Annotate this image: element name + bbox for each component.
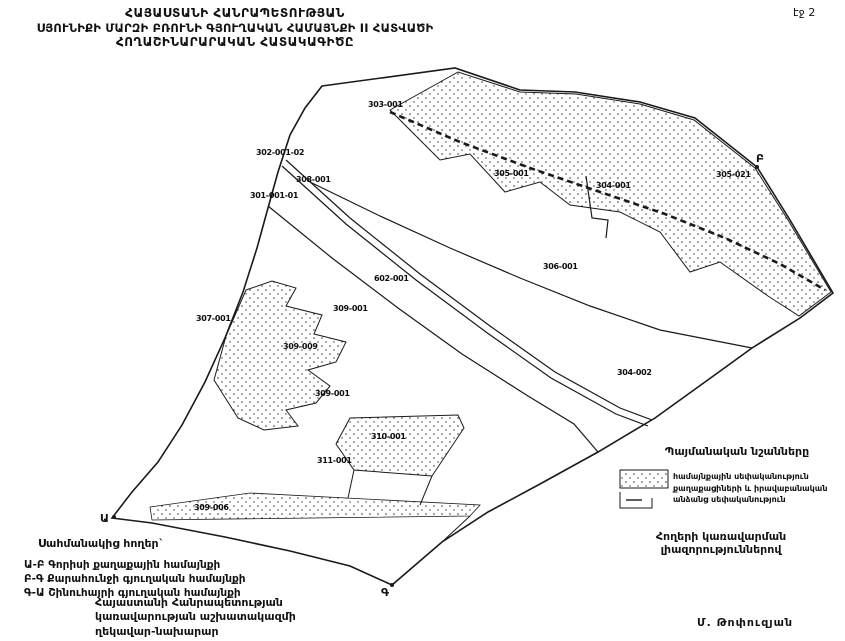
parcel-label: 306-001 — [543, 262, 578, 271]
parcel-label: 311-001 — [317, 456, 352, 465]
adjacent-lands-title: Սահմանակից հողեր` — [38, 537, 164, 550]
parcel-label: 305-001 — [494, 169, 529, 178]
stipple-region-west — [214, 281, 346, 430]
spur-line-3 — [442, 516, 470, 542]
parcel-label: 304-001 — [596, 181, 631, 190]
parcel-label: 309-001 — [315, 389, 350, 398]
parcel-label: 310-001 — [371, 432, 406, 441]
parcel-label: 307-001 — [196, 314, 231, 323]
gov-line-1: Հայաստանի Հանրապետության — [95, 596, 296, 610]
parcel-label: 303-001 — [368, 100, 403, 109]
signatory-name: Մ. Թոփուզյան — [697, 616, 793, 629]
parcel-label: 305-021 — [716, 170, 751, 179]
gov-line-2: կառավարության աշխատակազմի — [95, 610, 296, 624]
spur-line-1 — [420, 476, 432, 505]
cadastral-map-sheet: ՀԱՅԱՍՏԱՆԻ ՀԱՆՐԱՊԵՏՈՒԹՅԱՆ ՍՅՈՒՆԻՔԻ ՄԱՐԶԻ … — [0, 0, 845, 641]
parcel-label: 302-001-02 — [256, 148, 304, 157]
legend-item-line-1: համայնքային սեփականություն — [673, 471, 827, 483]
vertex-a-marker — [112, 515, 116, 519]
road-line-lower — [268, 206, 598, 452]
adjacent-lands-list: Ա-Բ Գորիսի քաղաքային համայնքի Բ-Գ Քարահո… — [24, 558, 246, 601]
management-note: Հողերի կառավարման լիազորություններով — [597, 530, 845, 556]
stipple-region-northeast-band — [390, 72, 831, 316]
parcel-label: 304-002 — [617, 368, 652, 377]
parcel-label: 309-006 — [194, 503, 229, 512]
boundary-point-a: Ա — [100, 512, 109, 525]
parcel-label: 309-001 — [333, 304, 368, 313]
parcel-label: 309-009 — [283, 342, 318, 351]
parcel-label: 602-001 — [374, 274, 409, 283]
spur-line-2 — [348, 470, 354, 498]
boundary-point-g: Գ — [381, 586, 389, 599]
vertex-g-marker — [390, 583, 394, 587]
legend-title: Պայմանական նշանները — [642, 445, 832, 458]
adjacent-land-item: Ա-Բ Գորիսի քաղաքային համայնքի — [24, 558, 246, 572]
vertex-b-marker — [755, 165, 759, 169]
legend-item-line-2: քաղաքացիների և իրավաբանական — [673, 483, 827, 495]
legend-item-text: համայնքային սեփականություն քաղաքացիների … — [673, 471, 827, 506]
legend-swatch-community — [620, 470, 668, 488]
legend-item-line-3: անձանց սեփականություն — [673, 494, 827, 506]
parcel-label: 301-001-01 — [250, 191, 298, 200]
stipple-region-south — [336, 415, 464, 476]
parcel-label: 308-001 — [296, 175, 331, 184]
boundary-point-b: Բ — [756, 152, 764, 165]
gov-line-3: ղեկավար-նախարար — [95, 625, 296, 639]
government-office-block: Հայաստանի Հանրապետության կառավարության ա… — [95, 596, 296, 639]
adjacent-land-item: Բ-Գ Քարահունջի գյուղական համայնքի — [24, 572, 246, 586]
